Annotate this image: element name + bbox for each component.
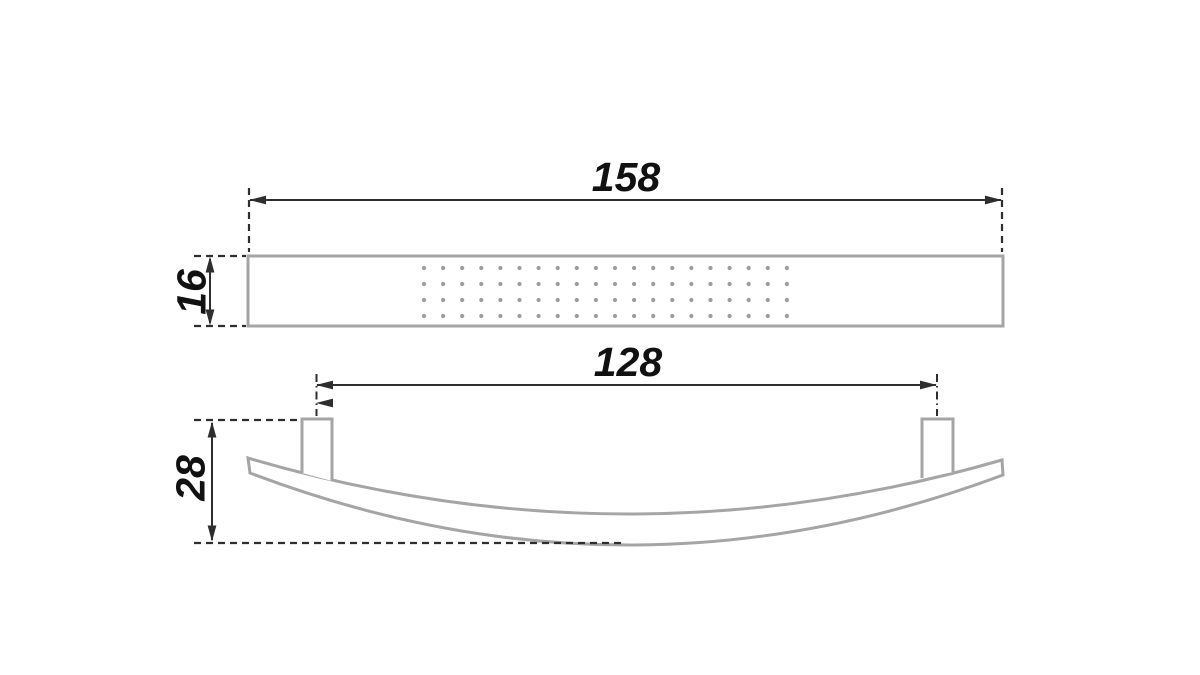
arrowhead-centerline bbox=[316, 399, 333, 408]
arrowhead-right bbox=[920, 381, 937, 390]
dim-handle-height-label: 28 bbox=[167, 455, 213, 502]
technical-drawing-page: 158 16 128 bbox=[0, 0, 1200, 675]
bow-handle-outline bbox=[248, 458, 1003, 545]
arrowhead-up bbox=[208, 422, 217, 438]
grip-dot-pattern bbox=[420, 261, 794, 323]
dim-spacing-label: 128 bbox=[594, 339, 663, 385]
mounting-post-left bbox=[302, 419, 332, 481]
mounting-post-right bbox=[922, 419, 953, 478]
arrowhead-right bbox=[985, 196, 1002, 205]
arrowhead-left bbox=[316, 381, 333, 390]
front-view: 128 28 bbox=[167, 339, 1003, 545]
dim-length-label: 158 bbox=[592, 154, 661, 200]
dim-bar-height-label: 16 bbox=[168, 268, 214, 315]
arrowhead-left bbox=[249, 196, 266, 205]
handle-dimension-drawing: 158 16 128 bbox=[0, 0, 1200, 675]
arrowhead-down bbox=[208, 526, 217, 542]
top-view: 158 16 bbox=[168, 154, 1003, 326]
